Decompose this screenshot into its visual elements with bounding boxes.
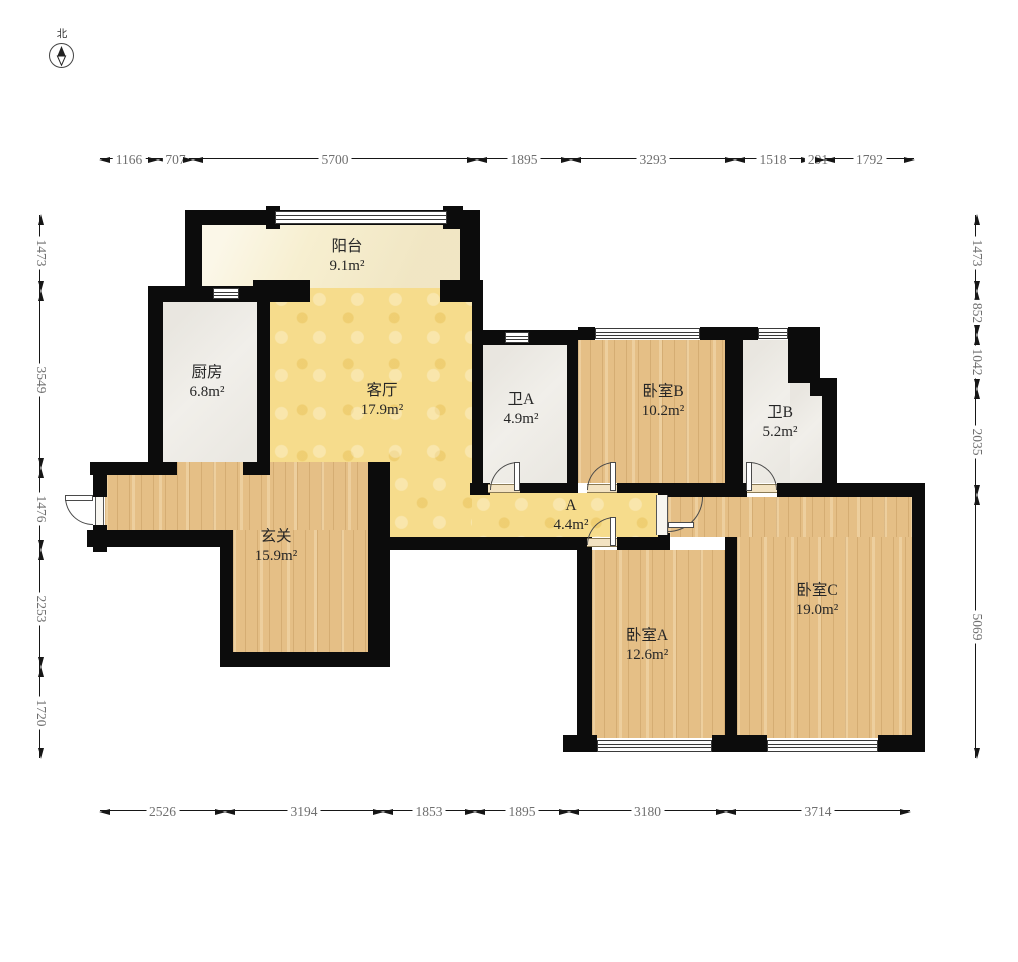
bedC-door-frame [656, 495, 668, 535]
dim-label: 1895 [508, 152, 541, 168]
dim-label: 1895 [506, 804, 539, 820]
bedB-door-leaf [610, 462, 616, 491]
wall [725, 537, 737, 738]
dim-label: 1476 [33, 493, 49, 526]
room-area: 9.1m² [292, 257, 402, 277]
dim-top-5: 1518 [735, 158, 811, 159]
dim-label: 2526 [146, 804, 179, 820]
dim-bottom-2: 1853 [383, 810, 475, 811]
wall [578, 327, 595, 340]
floor-living-south [390, 473, 472, 537]
room-name: A [516, 496, 626, 516]
dim-label: 852 [969, 300, 985, 326]
wall [483, 330, 578, 345]
wall [87, 530, 233, 547]
wall [658, 483, 747, 497]
room-name: 卫B [725, 403, 835, 423]
room-name: 阳台 [292, 237, 402, 257]
dim-right-1: 852 [975, 291, 976, 335]
dim-bottom-0: 2526 [100, 810, 225, 811]
wall [617, 483, 658, 493]
bathB-window [758, 328, 788, 339]
dim-label: 3180 [631, 804, 664, 820]
floor-bedC [737, 537, 912, 738]
room-area: 19.0m² [762, 601, 872, 621]
floor-bedC-north [668, 497, 912, 537]
dim-bottom-1: 3194 [225, 810, 383, 811]
dim-left-0: 1473 [39, 215, 40, 291]
room-area: 10.2m² [608, 402, 718, 422]
bedC-door-leaf [668, 522, 694, 528]
dim-label: 1792 [853, 152, 886, 168]
wall [520, 483, 578, 493]
dim-top-6: 291 [811, 158, 825, 159]
dim-right-4: 5069 [975, 495, 976, 758]
dim-label: 1042 [969, 346, 985, 379]
dim-label: 1473 [33, 237, 49, 270]
wall [777, 483, 925, 497]
room-name: 客厅 [327, 381, 437, 401]
room-label-living: 客厅 17.9m² [327, 381, 437, 421]
bedA-window [597, 740, 712, 752]
wall [243, 462, 270, 475]
compass-needle-icon [49, 43, 74, 68]
room-name: 卧室A [592, 626, 702, 646]
dim-top-7: 1792 [825, 158, 914, 159]
dim-label: 3293 [637, 152, 670, 168]
dim-top-2: 5700 [193, 158, 477, 159]
bathA-window [505, 332, 529, 343]
dim-label: 1518 [757, 152, 790, 168]
room-label-kitchen: 厨房 6.8m² [152, 363, 262, 403]
room-name: 玄关 [221, 527, 331, 547]
wall [658, 533, 670, 550]
dim-label: 1166 [113, 152, 146, 168]
room-label-entry: 玄关 15.9m² [221, 527, 331, 567]
dim-label: 1853 [413, 804, 446, 820]
kitchen-window [213, 288, 239, 299]
dim-left-1: 3549 [39, 291, 40, 468]
balcony-window [275, 211, 447, 224]
dim-label: 3194 [288, 804, 321, 820]
dim-label: 707 [162, 152, 188, 168]
room-area: 15.9m² [221, 547, 331, 567]
dim-top-0: 1166 [100, 158, 158, 159]
wall [368, 462, 390, 667]
room-label-bathB: 卫B 5.2m² [725, 403, 835, 443]
wall [788, 327, 820, 383]
dim-label: 5700 [319, 152, 352, 168]
entry-door-arc [65, 497, 93, 525]
room-label-hallway: A 4.4m² [516, 496, 626, 536]
wall [563, 735, 597, 752]
room-name: 卫A [466, 390, 576, 410]
dim-bottom-4: 3180 [569, 810, 726, 811]
north-label: 北 [50, 26, 74, 41]
wall [577, 537, 592, 752]
room-label-balcony: 阳台 9.1m² [292, 237, 402, 277]
wall [470, 483, 490, 495]
room-name: 卧室C [762, 581, 872, 601]
dim-top-3: 1895 [477, 158, 571, 159]
dim-label: 1720 [33, 696, 49, 729]
room-label-bedA: 卧室A 12.6m² [592, 626, 702, 666]
room-area: 5.2m² [725, 423, 835, 443]
dim-top-4: 3293 [571, 158, 735, 159]
room-area: 4.9m² [466, 410, 576, 430]
wall [712, 735, 767, 752]
dim-right-3: 2035 [975, 389, 976, 495]
room-label-bathA: 卫A 4.9m² [466, 390, 576, 430]
dim-label: 1473 [969, 237, 985, 270]
dim-right-2: 1042 [975, 335, 976, 389]
entry-door-leaf [65, 495, 93, 501]
wall [93, 462, 107, 497]
dim-left-2: 1476 [39, 468, 40, 550]
floorplan-canvas: 北 [0, 0, 1018, 962]
wall [912, 483, 925, 752]
wall [220, 652, 390, 667]
dim-bottom-5: 3714 [726, 810, 910, 811]
dim-label: 2253 [33, 592, 49, 625]
dim-left-3: 2253 [39, 550, 40, 667]
entry-door-frame [95, 497, 104, 525]
room-area: 4.4m² [516, 516, 626, 536]
bedC-window [767, 740, 878, 752]
dim-label: 3714 [802, 804, 835, 820]
wall [185, 210, 202, 290]
room-name: 厨房 [152, 363, 262, 383]
bedB-window [595, 328, 700, 339]
dim-label: 3549 [33, 363, 49, 396]
dim-label: 5069 [969, 610, 985, 643]
wall [380, 537, 587, 550]
room-label-bedB: 卧室B 10.2m² [608, 382, 718, 422]
room-area: 6.8m² [152, 383, 262, 403]
room-name: 卧室B [608, 382, 718, 402]
room-label-bedC: 卧室C 19.0m² [762, 581, 872, 621]
dim-bottom-3: 1895 [475, 810, 569, 811]
room-area: 17.9m² [327, 401, 437, 421]
room-area: 12.6m² [592, 646, 702, 666]
dim-right-0: 1473 [975, 215, 976, 291]
dim-left-4: 1720 [39, 667, 40, 758]
dim-top-1: 707 [158, 158, 193, 159]
dim-label: 2035 [969, 426, 985, 459]
bathA-door-leaf [514, 462, 520, 491]
bathB-door-leaf [746, 462, 752, 491]
